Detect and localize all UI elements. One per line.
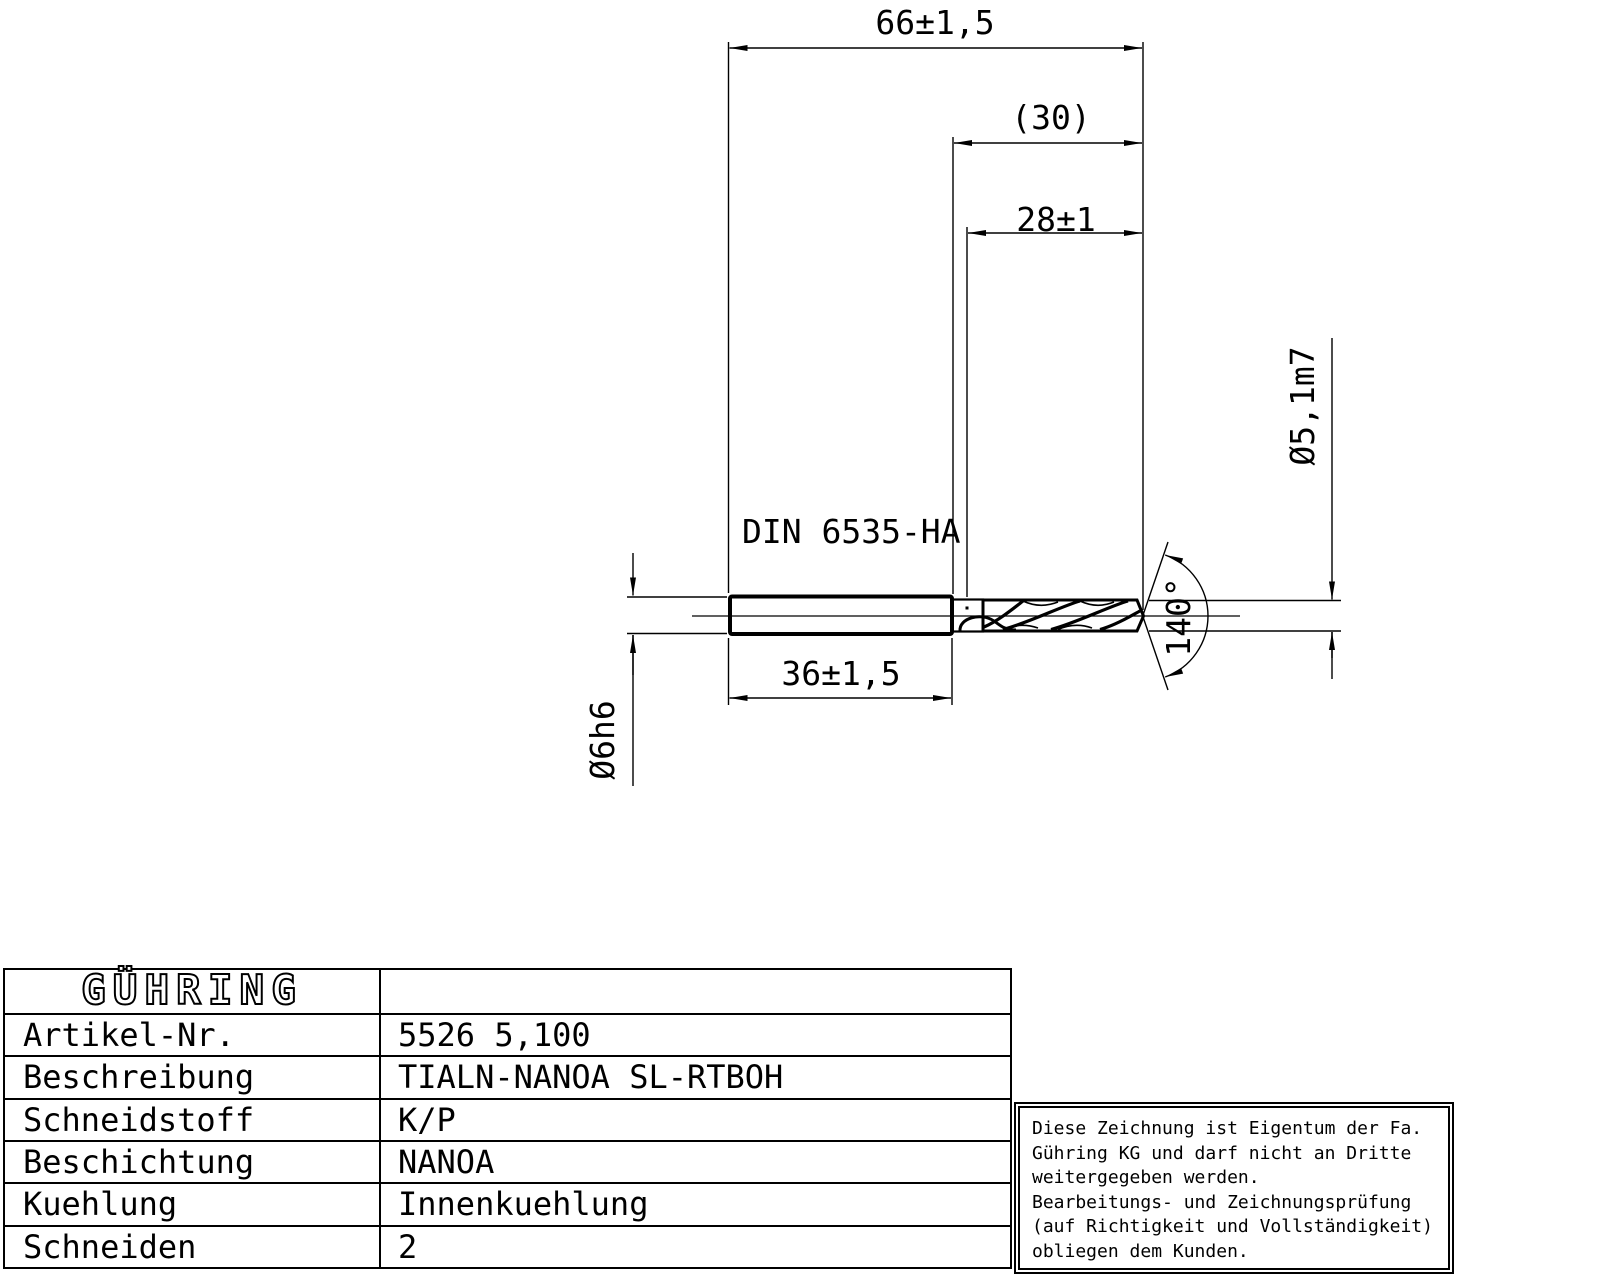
note-line: Bearbeitungs- und Zeichnungsprüfung — [1032, 1191, 1448, 1216]
row-label: Artikel-Nr. — [5, 1015, 381, 1055]
table-row: Beschreibung TIALN-NANOA SL-RTBOH — [5, 1055, 1010, 1097]
drill-shank — [730, 597, 952, 635]
ownership-note-box: Diese Zeichnung ist Eigentum der Fa. Güh… — [1014, 1102, 1454, 1274]
coolant-hole-dot — [966, 607, 969, 610]
dim-point-angle-label: 140° — [1159, 577, 1198, 656]
logo-cell: GÜHRING — [5, 970, 381, 1013]
table-row: Beschichtung NANOA — [5, 1140, 1010, 1182]
dim-shank-length-label: 36±1,5 — [781, 654, 900, 693]
row-value: TIALN-NANOA SL-RTBOH — [381, 1061, 783, 1093]
row-label: Beschreibung — [5, 1057, 381, 1097]
row-value: NANOA — [381, 1146, 494, 1178]
title-block-table: GÜHRING Artikel-Nr. 5526 5,100 Beschreib… — [3, 968, 1012, 1269]
flute-margin-1 — [1023, 601, 1058, 605]
row-label: Schneidstoff — [5, 1100, 381, 1140]
note-line: weitergegeben werden. — [1032, 1166, 1448, 1191]
flute-spiral-4 — [1100, 611, 1140, 630]
table-row: Kuehlung Innenkuehlung — [5, 1182, 1010, 1224]
table-row: Schneidstoff K/P — [5, 1098, 1010, 1140]
row-value: 2 — [381, 1231, 417, 1263]
dim-cutting-diameter-label: Ø5,1m7 — [1283, 346, 1322, 465]
flute-spiral-1 — [984, 601, 1023, 627]
dim-flute-length-label: 28±1 — [1016, 200, 1095, 239]
technical-drawing-page: { "drawing": { "dim_total_length": "66±1… — [0, 0, 1600, 1280]
note-line: Diese Zeichnung ist Eigentum der Fa. — [1032, 1117, 1448, 1142]
flute-spiral-3 — [1051, 601, 1128, 630]
flute-margin-2 — [1080, 601, 1114, 605]
shank-standard-label: DIN 6535-HA — [742, 512, 961, 551]
note-line: obliegen dem Kunden. — [1032, 1240, 1448, 1265]
note-line: (auf Richtigkeit und Vollständigkeit) — [1032, 1215, 1448, 1240]
row-value: 5526 5,100 — [381, 1019, 591, 1051]
table-row: Artikel-Nr. 5526 5,100 — [5, 1013, 1010, 1055]
dim-total-length-label: 66±1,5 — [875, 3, 994, 42]
dim-flute-overall-label: (30) — [1011, 98, 1090, 137]
row-label: Beschichtung — [5, 1142, 381, 1182]
logo-row: GÜHRING — [5, 970, 1010, 1013]
note-line: Gühring KG und darf nicht an Dritte — [1032, 1142, 1448, 1167]
logo-row-empty-cell — [381, 970, 1010, 1013]
ownership-note-inner-border: Diese Zeichnung ist Eigentum der Fa. Güh… — [1018, 1106, 1450, 1270]
dimension-lines — [633, 48, 1332, 786]
dim-shank-diameter-label: Ø6h6 — [583, 700, 622, 779]
table-row: Schneiden 2 — [5, 1225, 1010, 1267]
row-value: Innenkuehlung — [381, 1188, 648, 1220]
row-label: Kuehlung — [5, 1184, 381, 1224]
row-value: K/P — [381, 1104, 456, 1136]
row-label: Schneiden — [5, 1227, 381, 1267]
guehring-logo: GÜHRING — [81, 970, 303, 1011]
